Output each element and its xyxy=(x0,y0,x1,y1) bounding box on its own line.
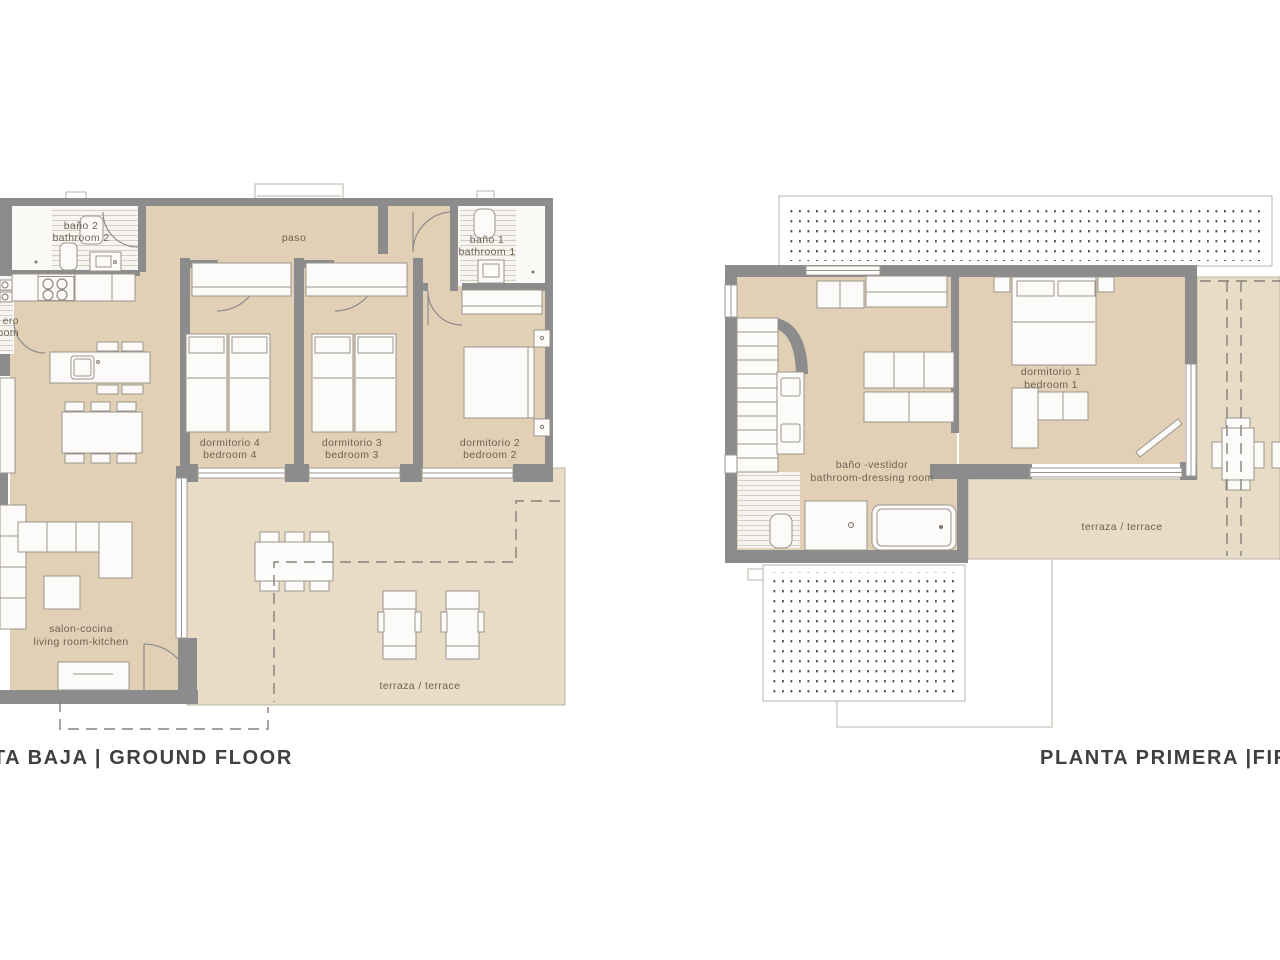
stool xyxy=(122,342,143,351)
ground-floor-plan: baño 2 bathroom 2 ero oom paso baño 1 ba… xyxy=(0,184,565,729)
roof-tab xyxy=(748,569,763,580)
room-label: living room-kitchen xyxy=(33,636,128,648)
drain-icon xyxy=(35,261,38,264)
wall xyxy=(413,258,423,470)
wall xyxy=(294,258,304,470)
room-label: baño 2 xyxy=(64,220,99,232)
room-label: dormitorio 3 xyxy=(322,437,382,449)
drain-icon xyxy=(939,525,943,529)
sink-counter xyxy=(478,260,504,283)
vent-tab xyxy=(66,192,86,199)
room-label: dormitorio 2 xyxy=(460,437,520,449)
wall xyxy=(0,354,10,376)
twin-bed xyxy=(355,334,396,432)
room-label: bedroom 2 xyxy=(463,449,517,461)
wall xyxy=(513,464,553,482)
stool xyxy=(97,342,118,351)
wall xyxy=(0,198,553,206)
chair xyxy=(91,454,110,463)
shower-icon xyxy=(805,501,867,550)
nightstand xyxy=(1098,277,1114,292)
wall xyxy=(400,464,422,482)
twin-bed xyxy=(186,334,227,432)
dining-set xyxy=(62,402,142,463)
wall xyxy=(930,464,1032,479)
wall xyxy=(178,638,197,698)
chair xyxy=(1226,418,1250,428)
bathtub-icon xyxy=(872,505,956,550)
twin-bed xyxy=(229,334,270,432)
room-label: baño -vestidor xyxy=(836,459,908,471)
chair xyxy=(285,581,304,591)
roof-dots xyxy=(789,205,1264,261)
twin-bed xyxy=(312,334,353,432)
room-label: ero xyxy=(3,315,19,327)
chair xyxy=(65,454,84,463)
room-label: terraza / terrace xyxy=(380,680,461,692)
ground-terrace-slab xyxy=(187,468,565,705)
room-label: bedroom 3 xyxy=(325,449,379,461)
desk xyxy=(1012,388,1038,448)
chair xyxy=(310,581,329,591)
wall xyxy=(0,198,12,272)
wall xyxy=(0,690,198,704)
chair xyxy=(91,402,110,411)
chair xyxy=(1212,442,1222,468)
wall xyxy=(138,206,146,272)
stairs xyxy=(737,318,778,472)
wall xyxy=(378,206,388,254)
room-label: bathroom-dressing room xyxy=(810,472,933,484)
wall xyxy=(725,265,1197,277)
window xyxy=(725,455,737,473)
dining-table xyxy=(62,412,142,453)
ground-floor-title: PLANTA BAJA | GROUND FLOOR xyxy=(0,747,293,769)
wardrobe xyxy=(864,352,954,388)
wall xyxy=(285,464,309,482)
first-floor-plan: baño -vestidor bathroom-dressing room do… xyxy=(725,196,1280,727)
first-floor-title: PLANTA PRIMERA |FIRST FLOOR xyxy=(1040,747,1280,769)
toilet-icon xyxy=(770,514,792,548)
room-label: baño 1 xyxy=(470,234,505,246)
room-label: bedroom 1 xyxy=(1024,379,1078,391)
nightstand xyxy=(534,330,550,347)
chair xyxy=(117,454,136,463)
room-label: bathroom 1 xyxy=(458,246,515,258)
coffee-table xyxy=(44,576,80,609)
roof-dots xyxy=(770,572,958,694)
nightstand xyxy=(534,419,550,436)
sun-lounger xyxy=(441,591,484,659)
wardrobe xyxy=(462,290,542,314)
tall-cabinet xyxy=(0,378,15,473)
stool xyxy=(97,385,118,394)
kitchen-island xyxy=(50,352,150,383)
floorplan-drawing: baño 2 bathroom 2 ero oom paso baño 1 ba… xyxy=(0,0,1280,960)
wall xyxy=(725,550,968,563)
wall xyxy=(0,473,8,507)
chair xyxy=(285,532,304,542)
chair xyxy=(260,532,279,542)
room-label: dormitorio 1 xyxy=(1021,366,1081,378)
wall xyxy=(423,283,428,291)
chair xyxy=(1254,442,1264,468)
bedroom3-furniture xyxy=(306,263,407,432)
room-label: paso xyxy=(282,232,306,244)
nightstand xyxy=(994,277,1010,292)
wall xyxy=(1185,265,1197,364)
room-label: oom xyxy=(0,327,19,339)
room-label: bathroom 2 xyxy=(52,232,109,244)
wall xyxy=(957,470,968,563)
stool xyxy=(122,385,143,394)
room-label: terraza / terrace xyxy=(1082,521,1163,533)
sun-lounger xyxy=(378,591,421,659)
wardrobe xyxy=(192,263,291,296)
double-bed xyxy=(464,347,534,418)
chair xyxy=(260,581,279,591)
wardrobe xyxy=(306,263,407,296)
toilet-icon xyxy=(60,243,77,270)
chair xyxy=(310,532,329,542)
room-label: bedroom 4 xyxy=(203,449,257,461)
drain-icon xyxy=(532,271,535,274)
floorplan-sheet: baño 2 bathroom 2 ero oom paso baño 1 ba… xyxy=(0,0,1280,960)
wall xyxy=(450,206,458,291)
room-label: salon-cocina xyxy=(49,623,113,635)
chair xyxy=(1272,442,1280,468)
chair xyxy=(117,402,136,411)
room-label: dormitorio 4 xyxy=(200,437,260,449)
sideboard xyxy=(58,662,129,690)
roof-tab xyxy=(255,184,343,200)
chair xyxy=(65,402,84,411)
chair xyxy=(1226,480,1250,490)
